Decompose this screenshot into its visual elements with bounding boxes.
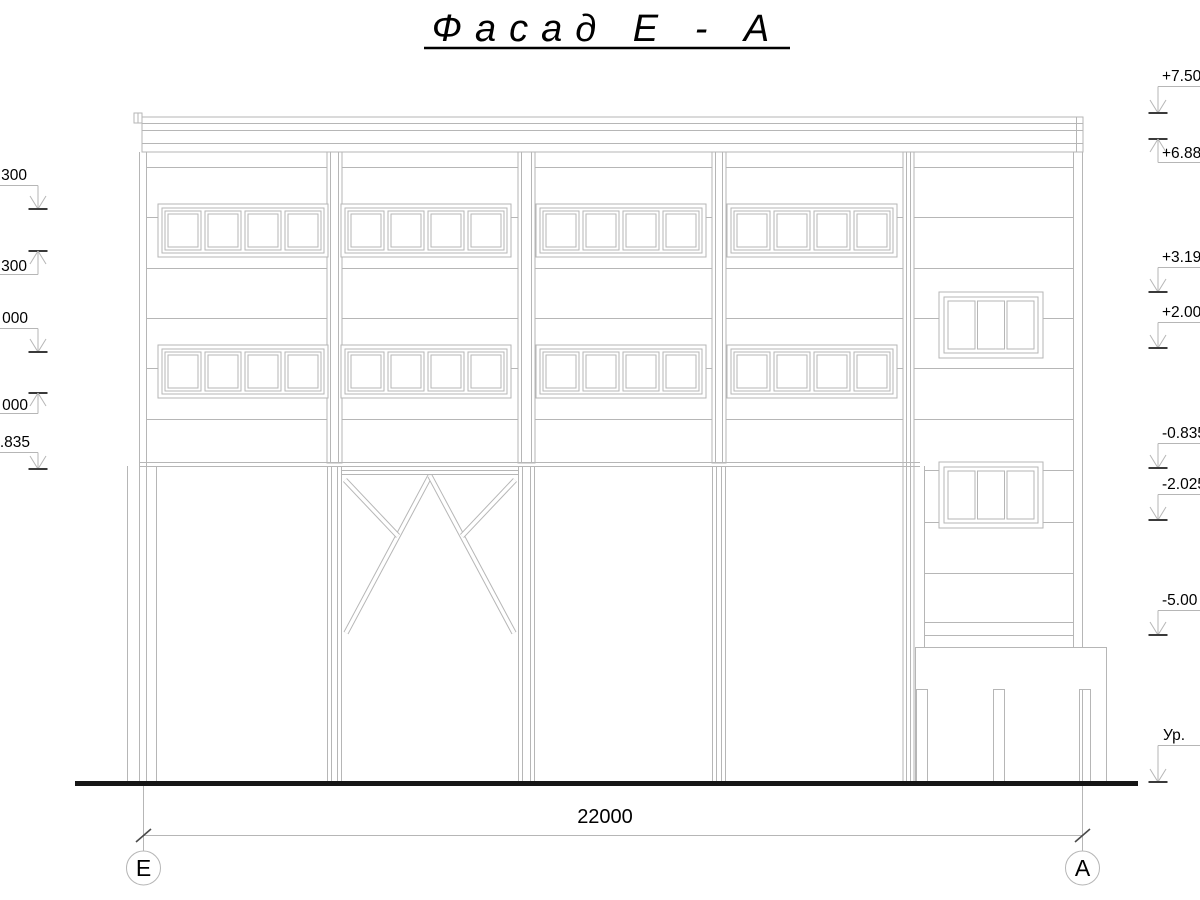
annex-window-upper [939, 292, 1043, 358]
pilaster-1 [327, 152, 342, 463]
annex-window-lower [939, 462, 1043, 528]
elevation-label: 000 [2, 397, 28, 414]
elevation-mark-left-2: 300 [0, 251, 48, 275]
elevation-label: -5.00 [1162, 592, 1198, 609]
elevation-label: +2.00 [1162, 304, 1200, 321]
elevation-mark-left-3: 000 [0, 310, 48, 352]
elevation-label: -2.025 [1162, 476, 1200, 493]
foundation-pier-3 [1080, 690, 1091, 785]
foundation-block [916, 648, 1107, 785]
drawing-sheet: Фасад Е - А [0, 0, 1200, 900]
column-4 [713, 466, 726, 784]
axis-label-right: А [1075, 855, 1091, 881]
elevation-label: 000 [2, 310, 28, 327]
elevation-label: +6.88 [1162, 145, 1200, 162]
foundation [916, 648, 1107, 785]
elevation-mark-left-5: .835 [0, 434, 48, 469]
foundation-pier-1 [917, 690, 928, 785]
column-2 [328, 466, 342, 784]
window-row1-bay2 [341, 204, 511, 257]
elevation-label: +3.19 [1162, 249, 1200, 266]
parapet-band [134, 113, 1083, 152]
elevation-marks-left: 300 300 000 000 .835 [0, 167, 48, 469]
title-block: Фасад Е - А [424, 8, 790, 50]
elevation-mark-left-1: 300 [0, 167, 48, 209]
window-row1-bay1 [158, 204, 328, 257]
column-3 [519, 466, 535, 784]
elevation-label: 300 [1, 167, 27, 184]
dimension-and-axes: 22000 Е А [127, 689, 1100, 885]
facade-elevation-drawing: Фасад Е - А [0, 0, 1200, 900]
elevation-mark-right-3: +3.19 [1149, 249, 1200, 292]
window-row1-bay4 [727, 204, 897, 257]
elevation-mark-right-8: Ур. [1149, 727, 1200, 782]
window-row2-bay2 [341, 345, 511, 398]
pilaster-2 [518, 152, 535, 463]
foundation-pier-2 [994, 690, 1005, 785]
window-row2-bay3 [536, 345, 706, 398]
elevation-label: .835 [0, 434, 30, 451]
elevation-mark-right-6: -2.025 [1149, 476, 1200, 520]
elevation-mark-right-2: +6.88 [1149, 139, 1200, 163]
elevation-label: -0.835 [1162, 425, 1200, 442]
pilaster-4 [903, 152, 914, 784]
elevation-mark-right-4: +2.00 [1149, 304, 1200, 348]
pilaster-3 [712, 152, 726, 463]
lower-columns [328, 466, 726, 784]
window-row1-bay3 [536, 204, 706, 257]
braced-bay [342, 471, 518, 634]
window-row2-bay4 [727, 345, 897, 398]
elevation-mark-right-1: +7.50 [1149, 68, 1200, 113]
drawing-title: Фасад Е - А [432, 8, 783, 50]
elevation-label: +7.50 [1162, 68, 1200, 85]
elevation-mark-left-4: 000 [0, 393, 48, 414]
elevation-mark-right-5: -0.835 [1149, 425, 1200, 468]
elevation-label: 300 [1, 258, 27, 275]
window-row2-bay1 [158, 345, 328, 398]
elevation-mark-right-7: -5.00 [1149, 592, 1200, 635]
elevation-label: Ур. [1163, 727, 1185, 744]
dimension-label: 22000 [577, 806, 633, 828]
axis-label-left: Е [136, 855, 151, 881]
elevation-marks-right: +7.50 +6.88 +3.19 +2.00 -0.835 [1149, 68, 1200, 782]
